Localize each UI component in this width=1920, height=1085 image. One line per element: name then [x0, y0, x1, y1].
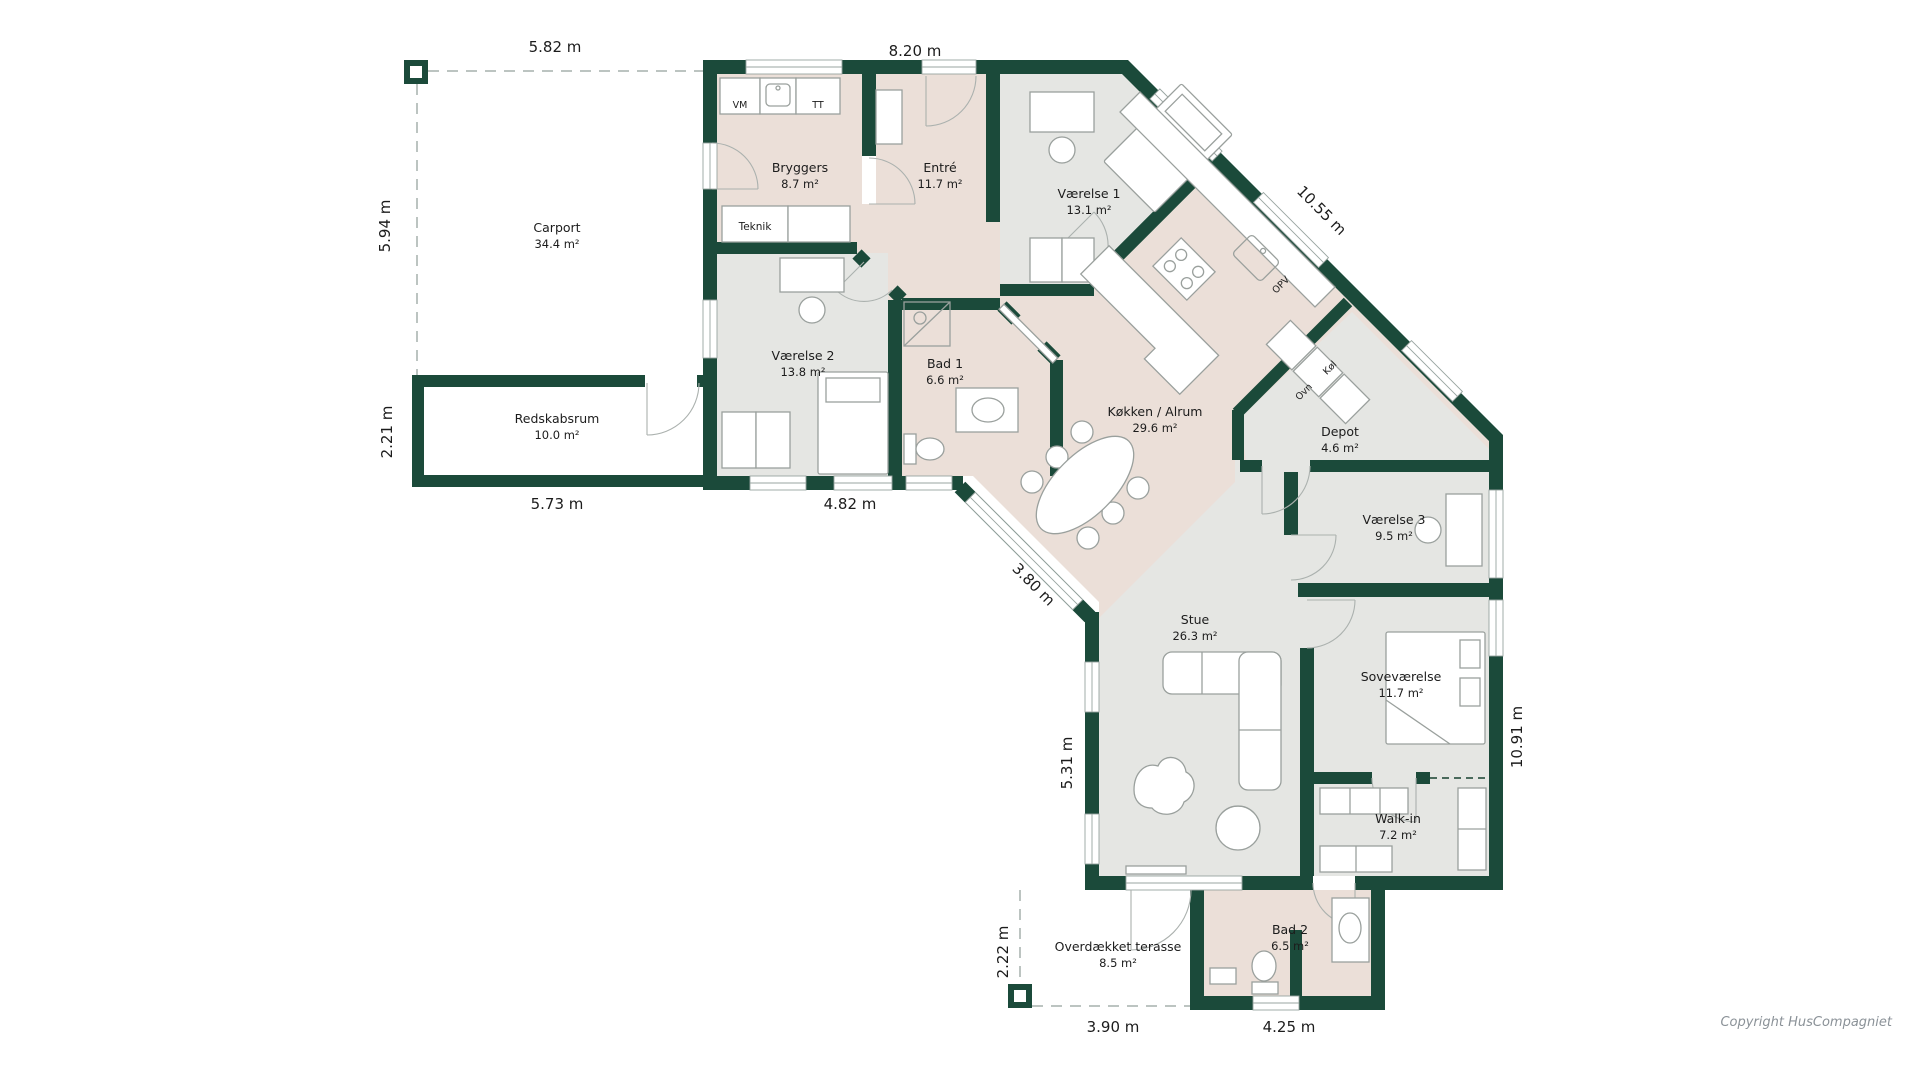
back-door-slot: [703, 143, 717, 189]
terrasse-post: [1008, 984, 1032, 1008]
windows-south-wing: [750, 476, 952, 490]
area-vaerelse2: 13.8 m²: [780, 365, 825, 379]
label-bad2: Bad 2: [1272, 922, 1308, 937]
dim-terrasse-left: 2.22 m: [994, 926, 1012, 979]
front-door-slot: [922, 60, 976, 74]
area-kokken: 29.6 m²: [1132, 421, 1177, 435]
area-bad2: 6.5 m²: [1271, 939, 1309, 953]
dim-redskab-bottom: 5.73 m: [531, 495, 584, 513]
area-vaerelse1: 13.1 m²: [1066, 203, 1111, 217]
copyright-text: Copyright HusCompagniet: [1720, 1015, 1892, 1030]
label-entre: Entré: [923, 160, 957, 175]
dim-redskab-left: 2.21 m: [378, 406, 396, 459]
area-sovevaerelse: 11.7 m²: [1378, 686, 1423, 700]
label-redskabsrum: Redskabsrum: [515, 411, 600, 426]
label-kokken: Køkken / Alrum: [1108, 404, 1203, 419]
dim-carport-left: 5.94 m: [376, 200, 394, 253]
label-vm: VM: [733, 100, 748, 111]
area-bad1: 6.6 m²: [926, 373, 964, 387]
label-walkin: Walk-in: [1375, 811, 1421, 826]
window-bryggers-top: [746, 60, 842, 74]
label-tt: TT: [811, 100, 824, 111]
label-vaerelse1: Værelse 1: [1058, 186, 1121, 201]
dim-wing-right: 10.91 m: [1508, 706, 1526, 768]
door-gap-bryggers-entre: [862, 156, 876, 204]
area-redskabsrum: 10.0 m²: [534, 428, 579, 442]
area-carport: 34.4 m²: [534, 237, 579, 251]
carport-post: [404, 60, 428, 84]
area-walkin: 7.2 m²: [1379, 828, 1417, 842]
area-entre: 11.7 m²: [917, 177, 962, 191]
door-gap-bad2: [1313, 876, 1355, 890]
label-stue: Stue: [1181, 612, 1210, 627]
label-terrasse: Overdækket terasse: [1055, 939, 1182, 954]
label-depot: Depot: [1321, 424, 1359, 439]
label-bad1: Bad 1: [927, 356, 963, 371]
dim-wing-top: 8.20 m: [889, 42, 942, 60]
area-depot: 4.6 m²: [1321, 441, 1359, 455]
window-sove-east: [1489, 600, 1503, 656]
dim-bad2-bottom: 4.25 m: [1263, 1018, 1316, 1036]
area-bryggers: 8.7 m²: [781, 177, 819, 191]
floorplan-canvas: Carport 34.4 m² Redskabsrum 10.0 m² Bryg…: [0, 0, 1920, 1080]
label-bryggers: Bryggers: [772, 160, 828, 175]
label-teknik: Teknik: [738, 221, 773, 233]
area-stue: 26.3 m²: [1172, 629, 1217, 643]
area-terrasse: 8.5 m²: [1099, 956, 1137, 970]
label-carport: Carport: [533, 220, 580, 235]
window-vaerelse2-west: [703, 300, 717, 358]
dim-carport-top: 5.82 m: [529, 38, 582, 56]
entre-wardrobe: [876, 90, 902, 144]
dim-terrasse-bottom: 3.90 m: [1087, 1018, 1140, 1036]
dim-wing-bottom: 4.82 m: [824, 495, 877, 513]
label-vaerelse2: Værelse 2: [772, 348, 835, 363]
window-bad2-south: [1253, 996, 1299, 1010]
dim-stue-left: 5.31 m: [1058, 737, 1076, 790]
area-vaerelse3: 9.5 m²: [1375, 529, 1413, 543]
label-vaerelse3: Værelse 3: [1363, 512, 1426, 527]
label-sovevaerelse: Soveværelse: [1361, 669, 1442, 684]
window-vaerelse3-east: [1489, 490, 1503, 578]
